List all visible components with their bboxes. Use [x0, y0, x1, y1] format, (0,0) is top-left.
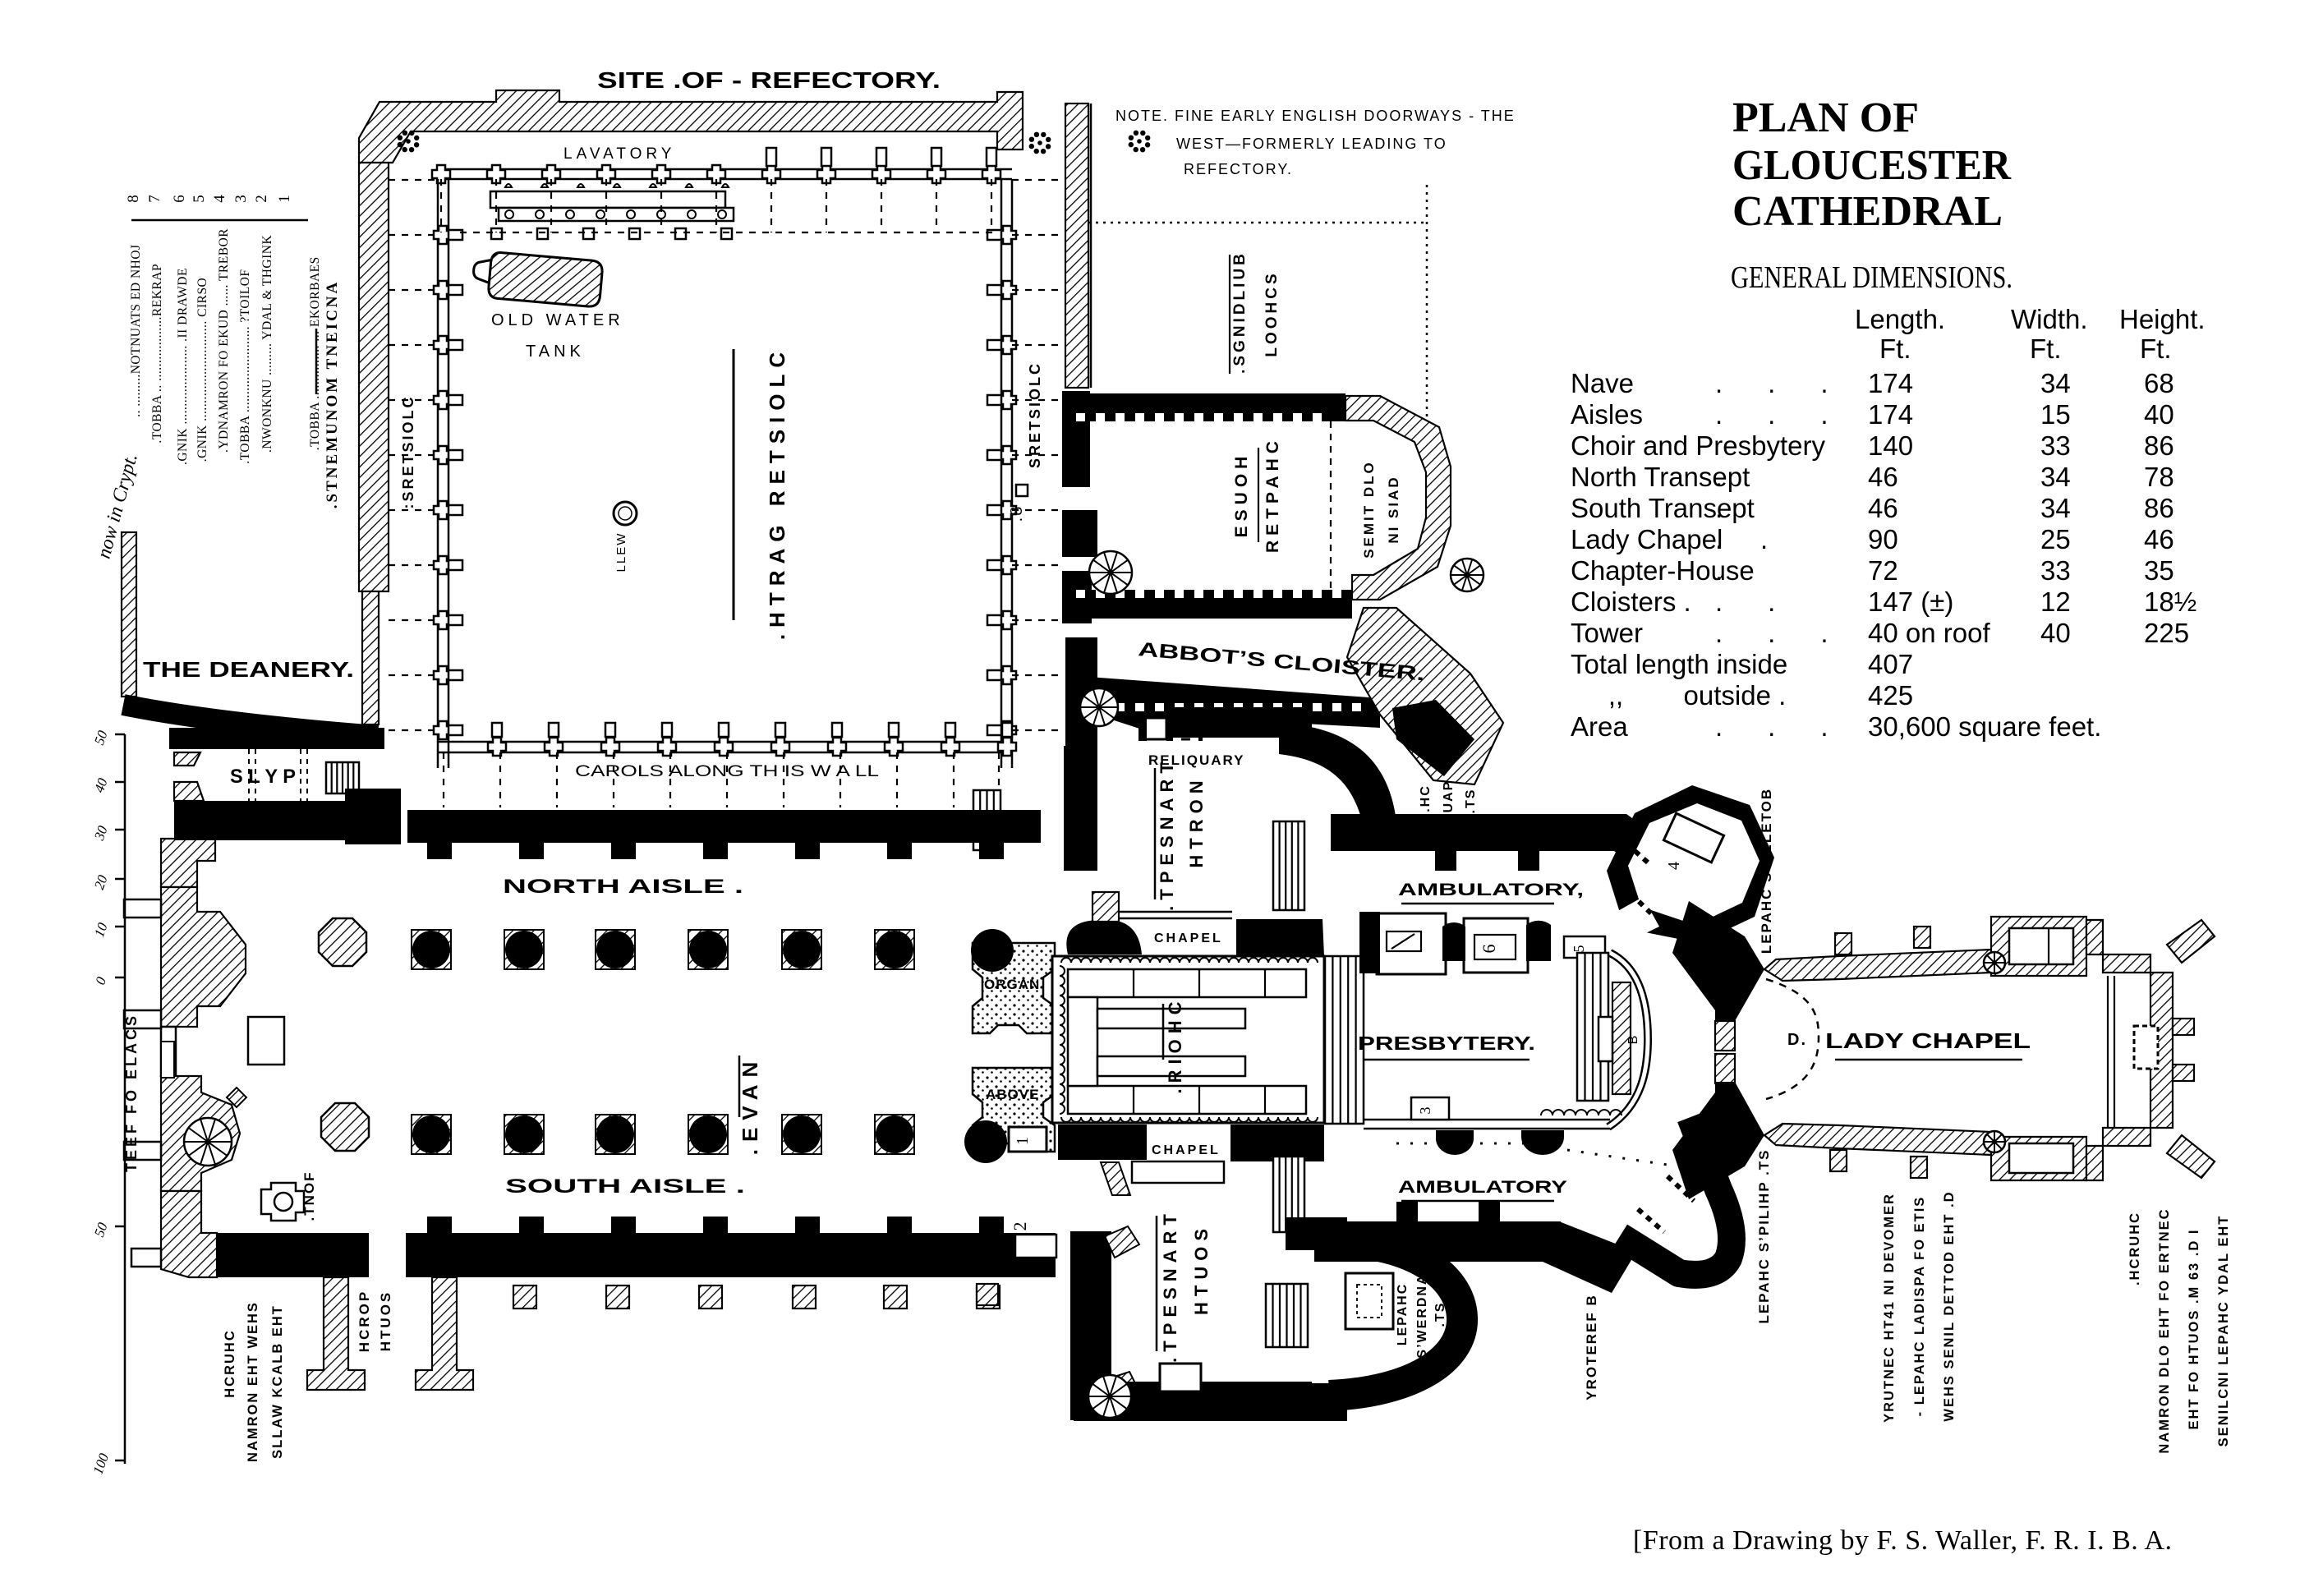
- svg-text:. . .: . . .: [1715, 711, 1828, 742]
- svg-text:5: 5: [1571, 942, 1587, 953]
- svg-text:,, outside .: ,, outside .: [1571, 680, 1786, 711]
- svg-text:Ft.: Ft.: [2030, 333, 2062, 364]
- svg-text:.: .: [1715, 462, 1723, 492]
- svg-text:3: 3: [1417, 1104, 1433, 1115]
- svg-text:LAVATORY: LAVATORY: [563, 145, 675, 163]
- svg-text:2: 2: [253, 191, 270, 203]
- svg-text:12: 12: [2040, 586, 2071, 617]
- svg-text:30,600 square feet.: 30,600 square feet.: [1868, 711, 2101, 742]
- svg-text:LADY CHAPEL: LADY CHAPEL: [1825, 1028, 2031, 1053]
- svg-text:WEST—FORMERLY LEADING TO: WEST—FORMERLY LEADING TO: [1176, 136, 1447, 152]
- svg-text:AMBULATORY: AMBULATORY: [1398, 1178, 1567, 1197]
- svg-text:1: 1: [276, 191, 293, 203]
- svg-text:SRETSIOLC: SRETSIOLC: [1027, 361, 1043, 468]
- svg-text:.STNEMUNOM TNEICNA: .STNEMUNOM TNEICNA: [324, 280, 341, 509]
- svg-text:.TS: .TS: [1464, 789, 1478, 814]
- svg-text:140: 140: [1868, 430, 1913, 461]
- svg-text:- LEPAHC LADISPA FO ETIS: - LEPAHC LADISPA FO ETIS: [1912, 1196, 1927, 1417]
- svg-text:SENILCNI LEPAHC YDAL EHT: SENILCNI LEPAHC YDAL EHT: [2216, 1215, 2231, 1447]
- svg-text:HCROP: HCROP: [356, 1290, 372, 1352]
- svg-text:Tower: Tower: [1571, 618, 1643, 648]
- svg-text:HTRON: HTRON: [1186, 775, 1207, 867]
- svg-text:Lady Chapel: Lady Chapel: [1571, 524, 1723, 554]
- svg-text:.GNIK ...................... .: .GNIK ...................... .II DRAWDE: [176, 268, 190, 465]
- svg-text:.HCRUHC: .HCRUHC: [2127, 1212, 2142, 1286]
- svg-text:.RIOHC: .RIOHC: [1165, 996, 1185, 1094]
- svg-text:46: 46: [2144, 524, 2174, 554]
- svg-text:South Transept: South Transept: [1571, 493, 1755, 523]
- svg-text:34: 34: [2040, 368, 2071, 398]
- svg-text:GLOUCESTER: GLOUCESTER: [1732, 142, 2012, 189]
- svg-text:25: 25: [2040, 524, 2071, 554]
- svg-text:68: 68: [2144, 368, 2174, 398]
- svg-text:NAMRON DLO EHT FO ERTNEC: NAMRON DLO EHT FO ERTNEC: [2157, 1207, 2172, 1453]
- svg-text:3: 3: [232, 191, 250, 203]
- svg-text:4: 4: [1665, 858, 1683, 870]
- svg-text:CATHEDRAL: CATHEDRAL: [1732, 188, 2003, 235]
- svg-text:7: 7: [146, 191, 163, 203]
- svg-text:LEPAHC S’RELETOB: LEPAHC S’RELETOB: [1759, 788, 1774, 954]
- svg-text:.NWONKNU ......... YDAL & THGI: .NWONKNU ......... YDAL & THGINK: [260, 235, 274, 453]
- svg-text:Ft.: Ft.: [1879, 333, 1911, 364]
- svg-text:SITE .OF - REFECTORY.: SITE .OF - REFECTORY.: [597, 67, 941, 93]
- svg-text:Nave: Nave: [1571, 368, 1634, 398]
- svg-text:D.: D.: [1787, 1031, 1807, 1049]
- svg-text:PRESBYTERY.: PRESBYTERY.: [1358, 1033, 1535, 1054]
- svg-text:B: B: [1626, 1033, 1640, 1045]
- svg-text:425: 425: [1868, 680, 1913, 711]
- svg-text:4: 4: [211, 191, 228, 203]
- svg-text:Cloisters .: Cloisters .: [1571, 586, 1691, 617]
- svg-text:S L Y P: S L Y P: [230, 766, 296, 788]
- svg-text:.. .........NOTNUATS ED NHOJ: .. .........NOTNUATS ED NHOJ: [129, 244, 143, 416]
- svg-text:.HC: .HC: [1419, 784, 1433, 812]
- svg-text:. . .: . . .: [1715, 618, 1828, 648]
- svg-text:SLLAW KCALB EHT: SLLAW KCALB EHT: [270, 1304, 285, 1459]
- svg-text:LOOHCS: LOOHCS: [1263, 270, 1281, 356]
- svg-text:5: 5: [191, 191, 208, 203]
- svg-text:40 on roof: 40 on roof: [1868, 618, 1990, 648]
- svg-text:NAMRON EHT WEHS: NAMRON EHT WEHS: [246, 1301, 260, 1462]
- svg-text:NI SIAD: NI SIAD: [1386, 475, 1401, 543]
- svg-text:2: 2: [1010, 1219, 1030, 1231]
- svg-text:CAROLS ALONG TH IS W A LL: CAROLS ALONG TH IS W A LL: [575, 763, 879, 780]
- svg-text:.TNOF: .TNOF: [301, 1171, 317, 1221]
- svg-text:78: 78: [2144, 462, 2174, 492]
- svg-text:YRUTNEC HT41 NI DEVOMER: YRUTNEC HT41 NI DEVOMER: [1882, 1193, 1897, 1423]
- svg-text:6: 6: [1479, 941, 1499, 954]
- svg-text:LLEW: LLEW: [614, 532, 628, 573]
- svg-text:HTUOS: HTUOS: [378, 1290, 393, 1352]
- svg-text:AMBULATORY,: AMBULATORY,: [1398, 881, 1584, 899]
- svg-text:. .: . .: [1715, 586, 1775, 617]
- svg-text:Area: Area: [1571, 711, 1628, 742]
- svg-text:.TS: .TS: [1433, 1302, 1447, 1327]
- svg-text:86: 86: [2144, 493, 2174, 523]
- svg-text:407: 407: [1868, 649, 1913, 679]
- svg-text:Length.: Length.: [1855, 304, 1945, 334]
- svg-text:8: 8: [125, 191, 142, 203]
- svg-text:.EVAN: .EVAN: [738, 1055, 762, 1156]
- svg-text:Choir and Presbytery: Choir and Presbytery: [1571, 430, 1825, 461]
- svg-text:. . .: . . .: [1715, 399, 1828, 430]
- svg-text:72: 72: [1868, 555, 1898, 586]
- svg-text:35: 35: [2144, 555, 2174, 586]
- svg-text:RETPAHC: RETPAHC: [1263, 436, 1282, 553]
- svg-text:.: .: [1715, 493, 1723, 523]
- svg-text:.HTRAG RETSIOLC: .HTRAG RETSIOLC: [765, 346, 789, 640]
- svg-text:PLAN OF: PLAN OF: [1732, 94, 1919, 141]
- svg-text:Ft.: Ft.: [2140, 333, 2172, 364]
- svg-text:WEHS SENIL DETTOD EHT .D: WEHS SENIL DETTOD EHT .D: [1942, 1190, 1957, 1421]
- svg-text:46: 46: [1868, 493, 1898, 523]
- svg-text:EHT FO HTUOS .M 63 .D I: EHT FO HTUOS .M 63 .D I: [2187, 1229, 2201, 1430]
- svg-text:.8: .8: [1008, 505, 1026, 522]
- svg-text:40: 40: [2040, 618, 2071, 648]
- svg-text:OLD WATER: OLD WATER: [491, 311, 624, 329]
- svg-text:34: 34: [2040, 493, 2071, 523]
- svg-text:34: 34: [2040, 462, 2071, 492]
- svg-text:SOUTH AISLE .: SOUTH AISLE .: [505, 1175, 745, 1198]
- svg-text:18½: 18½: [2144, 586, 2196, 617]
- svg-text:.: .: [1715, 555, 1723, 586]
- svg-text:HCRUHC: HCRUHC: [223, 1329, 237, 1398]
- svg-text::SRETSIOLC: :SRETSIOLC: [400, 394, 416, 508]
- svg-text:174: 174: [1868, 368, 1913, 398]
- svg-text:. . .: . . .: [1715, 368, 1828, 398]
- svg-text:86: 86: [2144, 430, 2174, 461]
- svg-text:.GNIK ........................: .GNIK ............................ CIRSO: [195, 278, 209, 462]
- svg-text:. .: . .: [1715, 524, 1768, 554]
- svg-text:LEPAHC S’PILIHP .TS: LEPAHC S’PILIHP .TS: [1756, 1148, 1772, 1323]
- svg-text:.TPESNART: .TPESNART: [1157, 757, 1177, 911]
- svg-text:33: 33: [2040, 430, 2071, 461]
- svg-text:15: 15: [2040, 399, 2071, 430]
- svg-text:Aisles: Aisles: [1571, 399, 1643, 430]
- svg-text:HTUOS: HTUOS: [1191, 1223, 1212, 1315]
- svg-text:CHAPEL: CHAPEL: [1154, 931, 1223, 945]
- svg-text:46: 46: [1868, 462, 1898, 492]
- svg-text:.SGNIDLIUB: .SGNIDLIUB: [1231, 251, 1249, 374]
- svg-text:.TOBBA .. ..................R: .TOBBA .. ..................REKRAP: [150, 264, 164, 444]
- svg-text:TEEF FO ELACS: TEEF FO ELACS: [123, 1013, 140, 1172]
- svg-text:1: 1: [1014, 1134, 1032, 1145]
- svg-text:LEPAHC: LEPAHC: [1396, 1283, 1410, 1346]
- svg-text:147 (±): 147 (±): [1868, 586, 1953, 617]
- svg-text:SEMIT DLO: SEMIT DLO: [1361, 460, 1377, 559]
- svg-text:THE DEANERY.: THE DEANERY.: [143, 657, 354, 682]
- svg-text:.: .: [1715, 649, 1723, 679]
- svg-text:ABOVE: ABOVE: [986, 1087, 1039, 1102]
- svg-text:ESUOH: ESUOH: [1232, 452, 1251, 538]
- svg-text:North Transept: North Transept: [1571, 462, 1750, 492]
- svg-text:90: 90: [1868, 524, 1898, 554]
- svg-text:.TOBBA ............... ... EKO: .TOBBA ............... ... EKORBAES: [308, 256, 322, 450]
- svg-text:S’WERDNA: S’WERDNA: [1415, 1273, 1429, 1358]
- svg-text:40: 40: [2144, 399, 2174, 430]
- svg-text:REFECTORY.: REFECTORY.: [1184, 161, 1293, 177]
- svg-text:Total length inside: Total length inside: [1571, 649, 1787, 679]
- svg-text:174: 174: [1868, 399, 1913, 430]
- svg-text:ORGAN: ORGAN: [984, 977, 1040, 992]
- svg-text:Chapter-House: Chapter-House: [1571, 555, 1755, 586]
- svg-text:Height.: Height.: [2119, 304, 2206, 334]
- svg-text:6: 6: [171, 191, 188, 203]
- svg-text:.TOBBA .......................: .TOBBA ........................ ?TOILOF: [238, 269, 252, 463]
- svg-text:33: 33: [2040, 555, 2071, 586]
- svg-text:NOTE. FINE EARLY ENGLISH DO: NOTE. FINE EARLY ENGLISH DOORWAYS - THE: [1115, 108, 1516, 124]
- svg-text:CHAPEL: CHAPEL: [1152, 1143, 1221, 1157]
- svg-text:Width.: Width.: [2011, 304, 2088, 334]
- svg-text:TANK: TANK: [526, 343, 585, 361]
- svg-text:.YDNAMRON FO EKUD ...... TREBO: .YDNAMRON FO EKUD ...... TREBOR: [217, 228, 231, 453]
- svg-text:225: 225: [2144, 618, 2189, 648]
- svg-text:GENERAL DIMENSIONS.: GENERAL DIMENSIONS.: [1731, 260, 2012, 295]
- svg-text:YROTEREF B: YROTEREF B: [1584, 1294, 1599, 1401]
- svg-text:[From a Drawing by F. S. Wa: [From a Drawing by F. S. Waller, F. R. I…: [1633, 1525, 2172, 1556]
- svg-text:.TPESNART: .TPESNART: [1160, 1208, 1180, 1363]
- svg-text:NORTH AISLE .: NORTH AISLE .: [503, 876, 743, 898]
